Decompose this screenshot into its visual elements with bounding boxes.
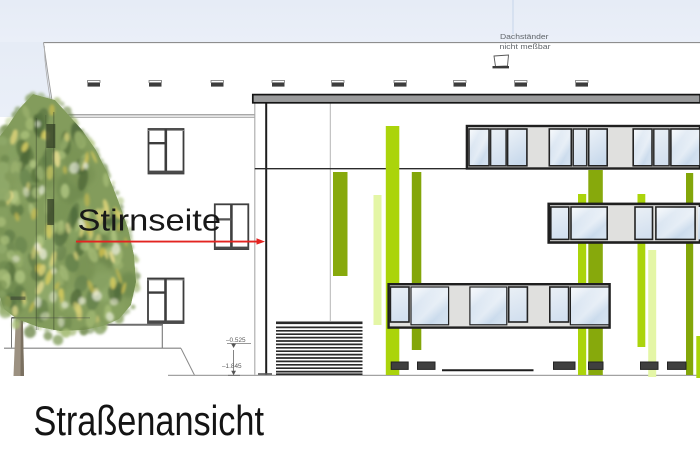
svg-text:Straßenansicht: Straßenansicht xyxy=(34,397,265,444)
svg-text:–0.525: –0.525 xyxy=(226,337,246,344)
svg-text:–1.845: –1.845 xyxy=(222,363,242,370)
svg-text:Dachständer: Dachständer xyxy=(500,32,549,41)
svg-text:Stirnseite: Stirnseite xyxy=(78,204,222,238)
svg-text:nicht meßbar: nicht meßbar xyxy=(500,42,552,51)
